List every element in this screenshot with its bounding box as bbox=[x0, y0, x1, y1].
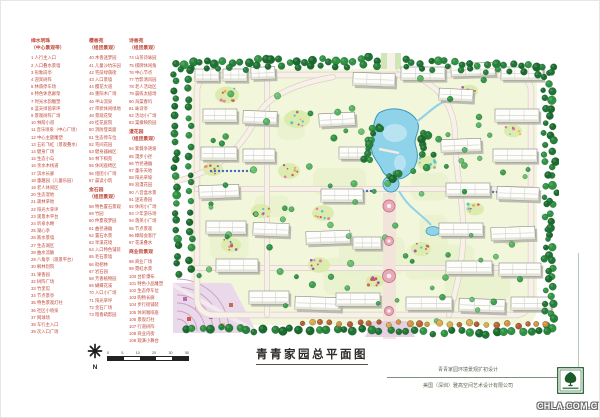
legend-item: 107 行道树阵 bbox=[129, 323, 163, 330]
scale-bar-ticks: 0510203050 bbox=[107, 351, 189, 355]
legend-item: 13 五彩飞虹（景观叠水） bbox=[31, 141, 80, 148]
legend-item: 16 亲水木栈道 bbox=[31, 162, 80, 169]
legend-item: 8 蓝天绿茵草坪 bbox=[31, 105, 80, 112]
company-logo bbox=[557, 367, 584, 394]
scale-tick-label: 30 bbox=[169, 351, 173, 355]
footer-captions-2: 美国（深圳）雅高空间艺术设计有限公司 bbox=[387, 379, 549, 390]
legend-item: 39 次入口广场 bbox=[31, 328, 80, 335]
legend-item: 73 暗香疏影园 bbox=[89, 311, 121, 318]
company-caption: 美国（深圳）雅高空间艺术设计有限公司 bbox=[387, 382, 549, 390]
legend-item: 81 咏诗亭 bbox=[129, 105, 163, 112]
legend-item: 44 樱花大道 bbox=[89, 83, 121, 90]
legend-item: 54 林下棋苑 bbox=[89, 155, 121, 162]
legend-item: 99 霓虹水景 bbox=[129, 265, 163, 272]
legend-item: 75 棋牌休闲角 bbox=[129, 62, 163, 69]
legend-item: 58 特色置石景观 bbox=[89, 203, 121, 210]
legend-item: 62 置石水景 bbox=[89, 232, 121, 239]
legend-item: 106 景观灯柱 bbox=[129, 316, 163, 323]
legend-item: 69 蝴蝶花溪 bbox=[89, 282, 121, 289]
legend-item: 57 晨读小筑 bbox=[89, 177, 121, 184]
legend-item: 80 海棠春坞 bbox=[129, 98, 163, 105]
legend-item: 82 活动小广场 bbox=[129, 112, 163, 119]
legend-item: 89 浪漫花田 bbox=[129, 181, 163, 188]
legend-item: 30 枫林别院 bbox=[31, 263, 80, 270]
legend-item: 90 八音盒水景 bbox=[129, 189, 163, 196]
project-caption: 青青家园环境景观扩初设计 bbox=[387, 366, 549, 374]
scale-segment bbox=[108, 357, 124, 360]
legend-item: 29 八角亭（观景平台） bbox=[31, 256, 80, 263]
compass-n-label: N bbox=[85, 364, 105, 371]
legend-item: 15 生态小岛 bbox=[31, 155, 80, 162]
legend-item: 92 休闲小广场 bbox=[129, 203, 163, 210]
legend-item: 9 景观树阵广场 bbox=[31, 112, 80, 119]
legend-item: 20 生态湿地 bbox=[31, 191, 80, 198]
legend-item: 83 棠棣映阶园 bbox=[129, 119, 163, 126]
legend-section-title: 樱香苑（组团景观） bbox=[89, 39, 121, 53]
legend-item: 32 树阵广场 bbox=[31, 278, 80, 285]
legend-item: 101 特色小品雕塑 bbox=[129, 280, 163, 287]
legend-item: 88 阳光草坡 bbox=[129, 174, 163, 181]
legend-item: 108 商业内街 bbox=[129, 330, 163, 337]
plan-title-text: 青青家园总平面图 bbox=[256, 346, 368, 365]
legend-item: 61 曲径通幽 bbox=[89, 225, 121, 232]
legend-item: 7 时光水韵雕塑 bbox=[31, 98, 80, 105]
legend-item: 26 跌水景墙 bbox=[31, 234, 80, 241]
legend-item: 34 节点景亭 bbox=[31, 292, 80, 299]
legend-section-title: 绿水明珠（中心景观带） bbox=[31, 39, 80, 53]
legend-item: 43 入口景墙 bbox=[89, 76, 121, 83]
legend-item: 48 景观花架 bbox=[89, 112, 121, 119]
legend-item: 102 生态停车位 bbox=[129, 287, 163, 294]
legend-item: 37 网球场 bbox=[31, 314, 80, 321]
legend-item: 46 半山流泉 bbox=[89, 98, 121, 105]
legend-item: 84 紫薇争艳坡 bbox=[129, 145, 163, 152]
footer-divider bbox=[387, 377, 557, 378]
compass-north-icon bbox=[87, 343, 103, 359]
legend-section-title: 金石园（组团景观） bbox=[89, 188, 121, 202]
legend-item: 78 老人活动区 bbox=[129, 83, 163, 90]
legend-item: 96 樟荫会客厅 bbox=[129, 232, 163, 239]
legend-item: 74 山茶诗咏园 bbox=[129, 54, 163, 61]
legend-item: 94 落英小广场 bbox=[129, 217, 163, 224]
legend-item: 97 花溪叠水 bbox=[129, 239, 163, 246]
legend-item: 2 入口叠水景墙 bbox=[31, 62, 80, 69]
legend-item: 85 漫步小径 bbox=[129, 153, 163, 160]
legend-item: 64 入口特色铺装 bbox=[89, 246, 121, 253]
legend-item: 86 竹径通幽 bbox=[129, 160, 163, 167]
legend-item: 40 木香迷梦园 bbox=[89, 54, 121, 61]
legend-item: 14 健身广场 bbox=[31, 148, 80, 155]
legend-item: 27 生态湖区 bbox=[31, 242, 80, 249]
legend-item: 60 仲夏夜梦园 bbox=[89, 217, 121, 224]
legend-item: 67 岩石园 bbox=[89, 268, 121, 275]
legend-item: 103 购物长廊 bbox=[129, 294, 163, 301]
legend-item: 36 社区小喷泉 bbox=[31, 307, 80, 314]
legend-item: 49 桂花庭院 bbox=[89, 119, 121, 126]
watermark: CHLA.COM.CN bbox=[537, 401, 600, 411]
legend-item: 6 特色休息廊架 bbox=[31, 90, 80, 97]
legend-item: 25 湖心亭 bbox=[31, 227, 80, 234]
scale-segment bbox=[124, 357, 140, 360]
legend-item: 56 组团小广场 bbox=[89, 170, 121, 177]
legend-item: 59 竹园 bbox=[89, 210, 121, 217]
legend-item: 76 中心节点 bbox=[129, 69, 163, 76]
legend-item: 17 滨水长廊 bbox=[31, 170, 80, 177]
legend-column-2: 樱香苑（组团景观）40 木香迷梦园41 儿童沙坑乐园42 宅前绿荫街43 入口景… bbox=[89, 39, 121, 318]
tree-logo-icon bbox=[557, 367, 584, 394]
plan-title: 青青家园总平面图 bbox=[233, 345, 391, 365]
legend-item: 91 迷迭香园 bbox=[129, 196, 163, 203]
legend-item: 104 步行街铺装 bbox=[129, 301, 163, 308]
screenshot-root: 绿水明珠（中心景观带）1 人行主入口2 入口叠水景墙3 形象岗亭4 迎宾树阵5 … bbox=[0, 0, 600, 418]
legend-item: 87 童乐天地 bbox=[129, 167, 163, 174]
legend-item: 70 入口小广场 bbox=[89, 289, 121, 296]
scale-segment bbox=[156, 357, 172, 360]
legend-item: 19 老人休闲区 bbox=[31, 184, 80, 191]
scale-bar: 0510203050 bbox=[107, 351, 189, 361]
scale-segment bbox=[140, 357, 156, 360]
legend-item: 109 观演小舞台 bbox=[129, 337, 163, 344]
scale-tick-label: 10 bbox=[136, 351, 140, 355]
legend-item: 66 枇杷林 bbox=[89, 261, 121, 268]
legend-item: 41 儿童沙坑乐园 bbox=[89, 62, 121, 69]
legend-item: 98 商业广场 bbox=[129, 258, 163, 265]
legend-item: 3 形象岗亭 bbox=[31, 69, 80, 76]
legend-item: 35 特色景观灯柱 bbox=[31, 299, 80, 306]
legend-item: 10 林荫小道 bbox=[31, 119, 80, 126]
legend-item: 93 少年游乐场 bbox=[129, 210, 163, 217]
legend-item: 21 疏林草地 bbox=[31, 198, 80, 205]
legend-item: 52 宅间花园 bbox=[89, 141, 121, 148]
legend-item: 5 林荫停车场 bbox=[31, 83, 80, 90]
legend-item: 105 休闲咖啡座 bbox=[129, 309, 163, 316]
legend-item: 45 重阳木广场 bbox=[89, 90, 121, 97]
legend-item: 71 阳光草坪 bbox=[89, 297, 121, 304]
legend-item: 4 迎宾树阵 bbox=[31, 76, 80, 83]
site-plan-map bbox=[169, 53, 559, 339]
legend-section-title: 诗香苑（组团景观） bbox=[129, 39, 163, 53]
legend-section-title: 商业街景观 bbox=[129, 250, 163, 257]
legend-column-3: 诗香苑（组团景观）74 山茶诗咏园75 棋牌休闲角76 中心节点77 竹影清风园… bbox=[129, 39, 163, 345]
legend-item: 42 宅前绿荫街 bbox=[89, 69, 121, 76]
scale-bar-segments bbox=[107, 356, 189, 361]
legend-item: 100 台阶瀑布 bbox=[129, 273, 163, 280]
legend-item: 79 晨练太极场 bbox=[129, 90, 163, 97]
scale-tick-label: 0 bbox=[107, 351, 109, 355]
legend-item: 38 车行主入口 bbox=[31, 321, 80, 328]
scale-tick-label: 50 bbox=[185, 351, 189, 355]
legend-item: 55 休闲座椅区 bbox=[89, 162, 121, 169]
legend-item: 28 曲水流觞 bbox=[31, 249, 80, 256]
legend-item: 24 听泉水榭 bbox=[31, 220, 80, 227]
legend-section-title: 漫花园（组团景观） bbox=[129, 130, 163, 144]
scale-segment bbox=[172, 357, 188, 360]
legend-item: 11 音乐喷泉（中心广场） bbox=[31, 126, 80, 133]
legend-item: 47 带状休闲绿地 bbox=[89, 105, 121, 112]
scale-tick-label: 5 bbox=[121, 351, 123, 355]
legend-item: 18 童趣园（儿童乐园） bbox=[31, 177, 80, 184]
legend-item: 77 竹影清风园 bbox=[129, 76, 163, 83]
legend-item: 33 竹里馆 bbox=[31, 285, 80, 292]
legend-column-1: 绿水明珠（中心景观带）1 人行主入口2 入口叠水景墙3 形象岗亭4 迎宾树阵5 … bbox=[31, 39, 80, 335]
legend-item: 22 阳光大草坪 bbox=[31, 206, 80, 213]
legend-item: 53 健身器械区 bbox=[89, 148, 121, 155]
scale-tick-label: 20 bbox=[152, 351, 156, 355]
footer-captions: 青青家园环境景观扩初设计 bbox=[387, 366, 549, 374]
legend-item: 68 芳香植物园 bbox=[89, 275, 121, 282]
legend-item: 23 观景木平台 bbox=[31, 213, 80, 220]
legend-item: 50 消防登高面 bbox=[89, 126, 121, 133]
compass: N bbox=[85, 343, 105, 371]
legend-item: 63 旱溪花境 bbox=[89, 239, 121, 246]
legend-item: 72 金石广场 bbox=[89, 304, 121, 311]
legend-item: 1 人行主入口 bbox=[31, 54, 80, 61]
legend-item: 12 中心主题雕塑 bbox=[31, 134, 80, 141]
titleblock-leader-line bbox=[578, 253, 579, 367]
legend-item: 95 节点景观 bbox=[129, 225, 163, 232]
legend-item: 31 果香园 bbox=[31, 271, 80, 278]
legend-item: 51 生态停车位 bbox=[89, 134, 121, 141]
legend-item: 65 毛石景墙 bbox=[89, 253, 121, 260]
